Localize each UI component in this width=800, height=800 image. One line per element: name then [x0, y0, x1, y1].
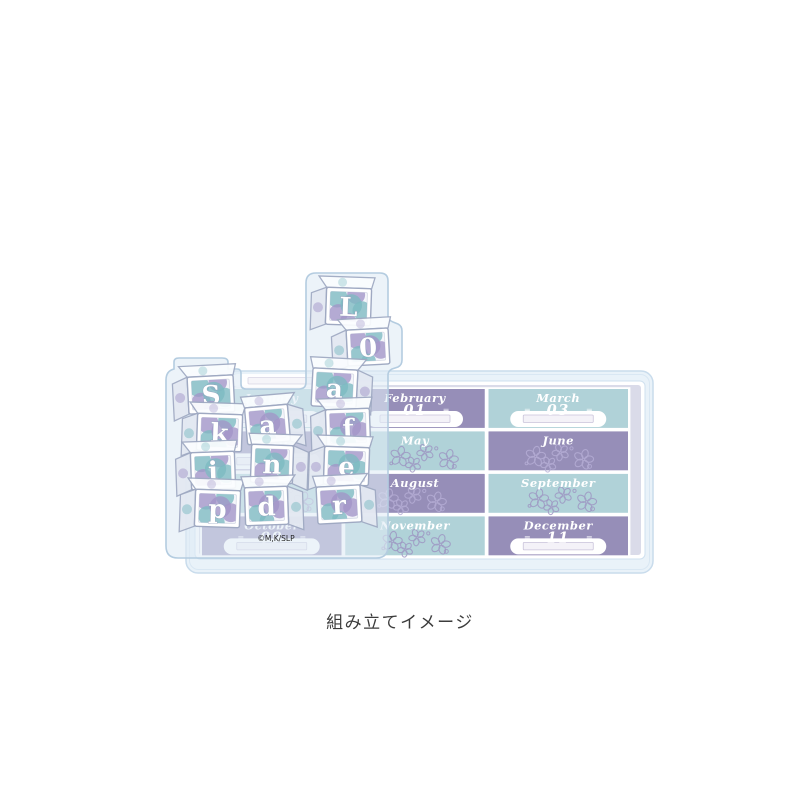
block-letter-glyph: d [257, 492, 276, 523]
block-letter-glyph: p [208, 495, 227, 526]
month-label: June [541, 433, 574, 447]
calendar-cell-september: September [489, 474, 629, 515]
month-label: September [521, 476, 596, 490]
caption: 組み立てイメージ [0, 608, 800, 633]
calendar-cell-december: 11≡≡December [489, 516, 629, 555]
svg-text:≡: ≡ [586, 406, 593, 415]
svg-text:≡: ≡ [524, 533, 531, 542]
block-letter-glyph: r [331, 491, 347, 522]
svg-text:≡: ≡ [443, 406, 450, 415]
month-label: May [400, 433, 430, 447]
svg-text:≡: ≡ [524, 406, 531, 415]
month-label: August [390, 476, 440, 490]
month-label: December [523, 518, 594, 532]
copyright-text: ©M,K/SLP [257, 534, 295, 543]
product-photo: January01≡February03≡≡MarchAprilMayJuneJ… [0, 0, 800, 800]
calendar-cell-march: 03≡≡March [489, 389, 629, 428]
month-label: November [379, 518, 450, 532]
calendar-cell-june: June [489, 431, 629, 472]
svg-text:≡: ≡ [586, 533, 593, 542]
month-label: February [383, 391, 446, 405]
month-label: March [535, 391, 580, 405]
calendar-product-graphic: January01≡February03≡≡MarchAprilMayJuneJ… [0, 0, 800, 800]
